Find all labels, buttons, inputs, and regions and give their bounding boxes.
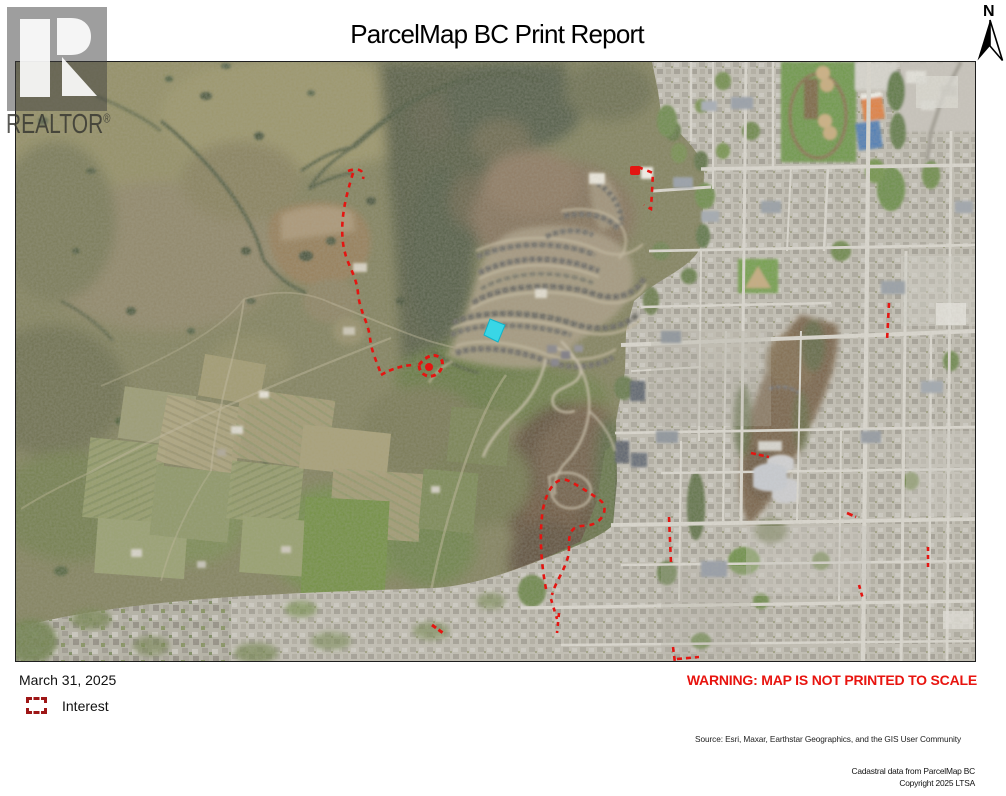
svg-text:N: N xyxy=(983,3,995,20)
